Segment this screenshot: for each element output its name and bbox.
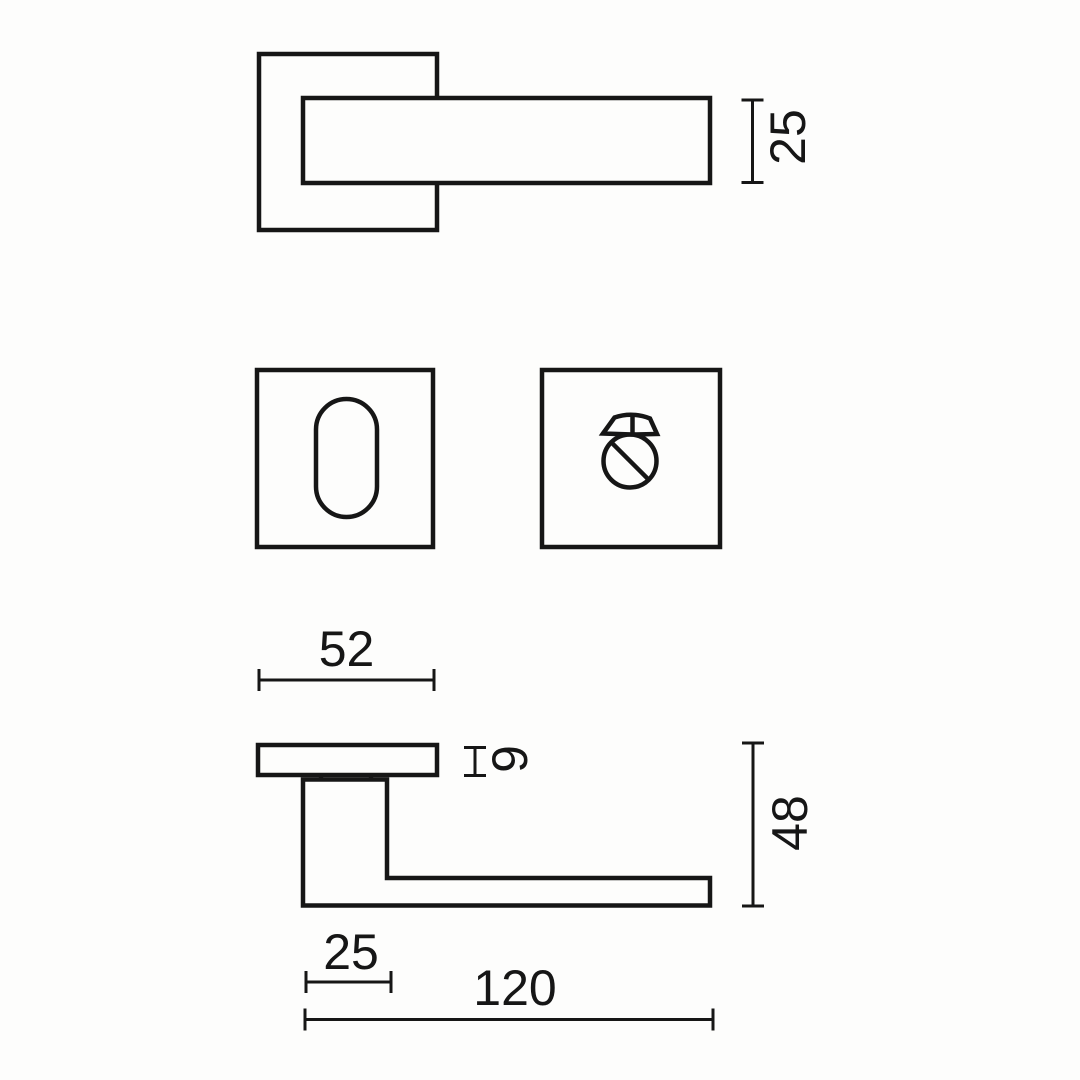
dim-rose-width: 52 [259,621,434,691]
wc-escutcheon-plate [542,370,720,547]
side-rose-plate [258,745,437,775]
dim-front-lever-height-label: 25 [760,109,816,165]
dim-handle-height-label: 48 [762,795,818,851]
side-view: 52 9 48 25 [258,621,818,1031]
side-handle-profile [303,780,710,906]
front-lever-bar [303,98,710,183]
key-escutcheon-view [257,370,433,547]
dim-handle-height: 48 [742,743,818,906]
technical-drawing-page: 25 52 [0,0,1080,1080]
dim-neck-width: 25 [306,924,391,993]
wc-escutcheon-view [542,370,720,547]
door-handle-dimension-drawing: 25 52 [0,0,1080,1080]
dim-rose-width-label: 52 [319,621,375,677]
dim-handle-length-label: 120 [473,960,556,1016]
dim-front-lever-height: 25 [742,100,817,183]
dim-rose-thickness-label: 9 [482,745,538,773]
front-view: 25 [259,54,816,230]
key-escutcheon-plate [257,370,433,547]
dim-neck-width-label: 25 [323,924,379,980]
dim-rose-thickness: 9 [464,745,538,775]
